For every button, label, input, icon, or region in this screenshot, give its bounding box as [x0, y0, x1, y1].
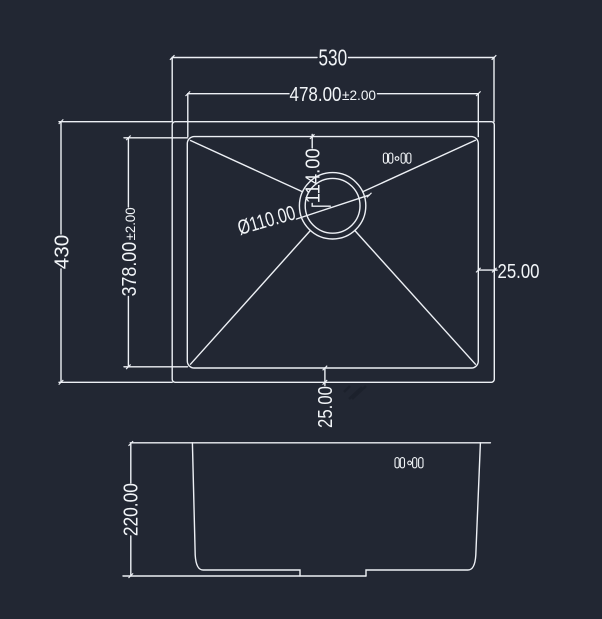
svg-text:220.00: 220.00 — [119, 483, 142, 536]
svg-text:25.00: 25.00 — [498, 260, 540, 283]
svg-text:530: 530 — [319, 45, 348, 71]
svg-text:±2.00: ±2.00 — [342, 87, 376, 103]
svg-text:478.00: 478.00 — [290, 83, 342, 106]
svg-text:114.00: 114.00 — [302, 148, 325, 203]
svg-text:±2.00: ±2.00 — [122, 207, 138, 240]
svg-text:25.00: 25.00 — [314, 386, 337, 428]
svg-text:430: 430 — [51, 235, 74, 270]
svg-text:378.00: 378.00 — [118, 242, 141, 297]
